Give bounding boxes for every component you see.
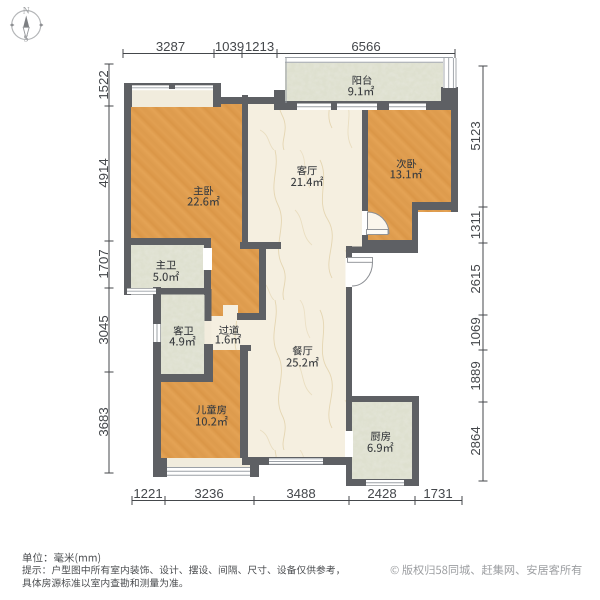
svg-text:1069: 1069 — [468, 317, 483, 346]
svg-text:4914: 4914 — [96, 158, 111, 187]
svg-text:3488: 3488 — [286, 486, 315, 501]
svg-text:1213: 1213 — [245, 39, 274, 54]
svg-text:1221: 1221 — [133, 486, 162, 501]
svg-text:3683: 3683 — [96, 407, 111, 436]
svg-text:3287: 3287 — [156, 39, 185, 54]
svg-text:1039: 1039 — [215, 39, 244, 54]
svg-text:1311: 1311 — [468, 211, 483, 239]
svg-text:1707: 1707 — [96, 249, 111, 278]
svg-text:2864: 2864 — [468, 426, 483, 455]
svg-text:1889: 1889 — [468, 361, 483, 390]
svg-text:6566: 6566 — [351, 39, 380, 54]
svg-text:2615: 2615 — [468, 264, 483, 293]
svg-text:2428: 2428 — [367, 486, 396, 501]
svg-text:1522: 1522 — [96, 70, 111, 99]
svg-text:3236: 3236 — [194, 486, 223, 501]
svg-text:1731: 1731 — [423, 486, 452, 501]
svg-text:3045: 3045 — [96, 315, 111, 344]
svg-text:5123: 5123 — [468, 121, 483, 150]
svg-text:N: N — [23, 7, 30, 17]
